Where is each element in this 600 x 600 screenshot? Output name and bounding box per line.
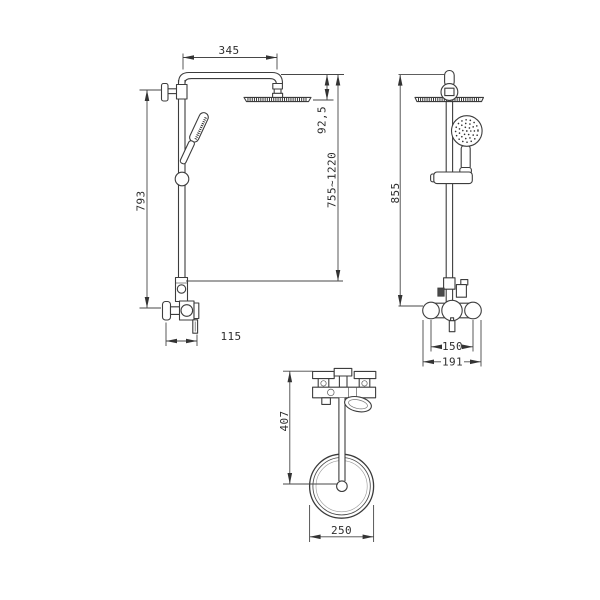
rain-shower-head-edge-side (244, 97, 311, 101)
hand-shower-side (178, 111, 210, 165)
shower-arm-side (179, 73, 283, 98)
dim-bracket-to-valve: 793 (135, 90, 163, 308)
riser-pipe-front (446, 84, 452, 304)
dimension-label-head-drop: 92,5 (316, 106, 329, 134)
slider-ring (175, 172, 189, 186)
top-view: 407 250 (278, 368, 376, 542)
dimension-label-arm-length: 345 (218, 44, 239, 57)
dim-adjustable-height: 755~1220 (186, 75, 343, 282)
dimension-label-overall-height: 855 (389, 182, 402, 203)
dim-overall-height: 855 (389, 75, 445, 306)
mixer-valve-front (423, 278, 482, 332)
dim-head-diameter: 250 (310, 505, 374, 542)
dimension-label-inlet-centers: 150 (442, 340, 463, 353)
riser-fitting-side (176, 278, 188, 302)
technical-drawing-canvas: 345 92,5 755~1220 793 115 (0, 0, 600, 600)
slider-bracket-front (431, 172, 473, 184)
dimension-label-bracket-to-valve: 793 (135, 190, 148, 211)
dim-arm-length: 345 (183, 44, 277, 70)
dimension-label-wall-projection: 115 (220, 330, 241, 343)
dim-head-drop: 92,5 (281, 75, 344, 135)
dimension-label-wall-to-head-center: 407 (278, 410, 291, 431)
hand-shower-front (452, 116, 483, 174)
wall-unions-top (313, 368, 376, 388)
shower-technical-drawing: 345 92,5 755~1220 793 115 (0, 0, 600, 600)
wall-bracket (162, 84, 188, 102)
dimension-label-adjustable-height: 755~1220 (326, 152, 339, 208)
side-view: 345 92,5 755~1220 793 115 (135, 44, 345, 346)
down-pipe-top (337, 398, 348, 492)
front-view: 855 150 191 (389, 71, 484, 369)
dim-wall-projection: 115 (166, 323, 242, 347)
mixer-valve-side (163, 301, 199, 333)
dimension-label-head-diameter: 250 (331, 524, 352, 537)
dimension-label-valve-width: 191 (442, 355, 463, 368)
